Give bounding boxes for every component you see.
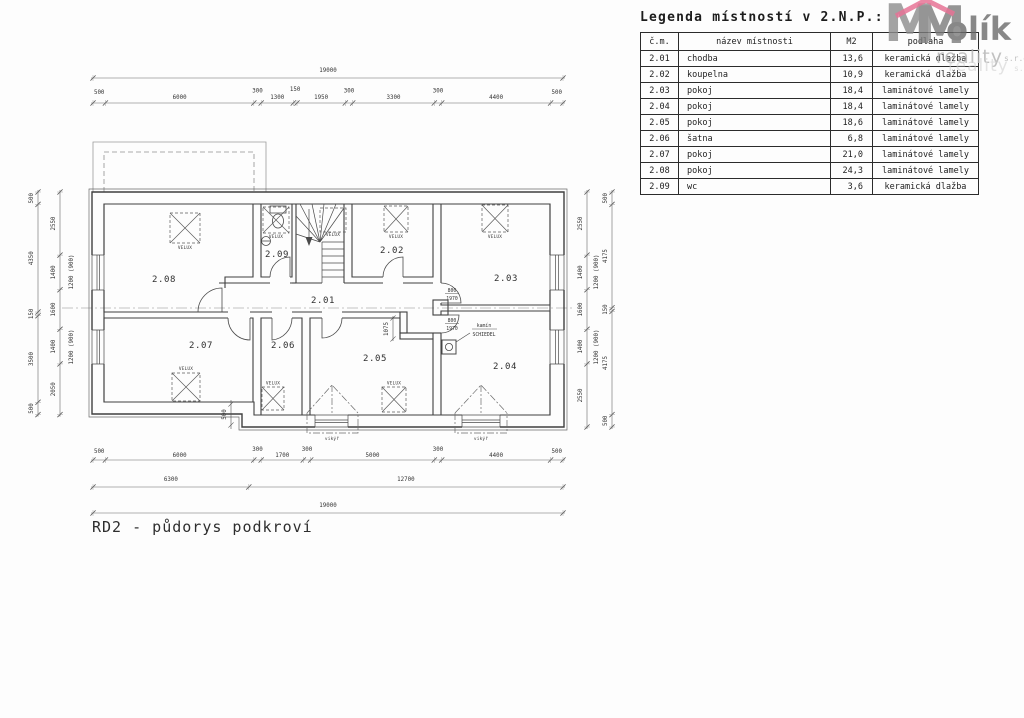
- room-207-outline: [104, 318, 253, 402]
- velux-label: VELUX: [179, 366, 193, 372]
- window-right-1: [548, 255, 566, 290]
- legend-cell: 2.06: [641, 131, 679, 147]
- door-209: [270, 257, 290, 277]
- legend-title: Legenda místností v 2.N.P.:: [640, 10, 985, 25]
- dim-label: 2550: [51, 216, 57, 230]
- dim-label: 500: [29, 192, 35, 203]
- velux-207: VELUX: [172, 366, 200, 401]
- velux-label: VELUX: [326, 232, 340, 238]
- chimney-label-schiedel: SCHIEDEL: [472, 332, 495, 338]
- door-207: [228, 318, 250, 340]
- dim-label: 500: [94, 449, 105, 455]
- dim-label: 150: [603, 304, 609, 315]
- legend-cell: 2.08: [641, 163, 679, 179]
- dim-label: 300: [252, 89, 263, 95]
- legend-cell: keramická dlažba: [873, 67, 979, 83]
- velux-label: VELUX: [389, 234, 403, 240]
- toilet: [270, 206, 286, 228]
- door-size-height: 1970: [446, 326, 458, 332]
- stair-direction-arrow: [306, 237, 313, 246]
- door-206: [272, 318, 292, 340]
- dim-label: 300: [433, 89, 444, 95]
- legend-cell: 2.05: [641, 115, 679, 131]
- velux-label: VELUX: [387, 381, 401, 387]
- room-label-209: 2.09: [265, 250, 289, 260]
- roof-annex-outline: [93, 142, 266, 192]
- legend-header-floor: podlaha: [873, 33, 979, 51]
- velux-203: VELUX: [482, 205, 508, 240]
- dim-label: 300: [252, 447, 263, 453]
- dim-label: 150: [290, 87, 301, 93]
- velux-202: VELUX: [384, 206, 408, 240]
- room-label-202: 2.02: [380, 246, 404, 256]
- dim-label: 1300: [270, 95, 284, 101]
- legend-cell: laminátové lamely: [873, 83, 979, 99]
- door-size-width: 800: [448, 318, 457, 324]
- door-202: [383, 257, 403, 277]
- velux-208: VELUX: [170, 213, 200, 251]
- velux-label: VELUX: [178, 245, 192, 251]
- dim-label: 4400: [489, 453, 503, 459]
- chimney-label-kamin: kamín: [477, 322, 492, 329]
- legend-cell: laminátové lamely: [873, 99, 979, 115]
- legend-cell: laminátové lamely: [873, 147, 979, 163]
- dim-label: 300: [344, 89, 355, 95]
- legend-header-row: č.m. název místnosti M2 podlaha: [641, 33, 979, 51]
- legend-cell: laminátové lamely: [873, 115, 979, 131]
- legend-cell: 21,0: [831, 147, 873, 163]
- dim-label: 19000: [319, 503, 337, 509]
- dim-label: 1400: [51, 265, 57, 279]
- legend-panel: Legenda místností v 2.N.P.: č.m. název m…: [640, 10, 985, 195]
- legend-row: 2.05pokoj18,6laminátové lamely: [641, 115, 979, 131]
- step-dimension: 500: [222, 409, 228, 420]
- legend-cell: laminátové lamely: [873, 131, 979, 147]
- legend-cell: 6,8: [831, 131, 873, 147]
- legend-header-name: název místnosti: [679, 33, 831, 51]
- legend-cell: 18,6: [831, 115, 873, 131]
- dim-label: 500: [603, 415, 609, 426]
- dim-label: 1700: [275, 453, 289, 459]
- legend-cell: 2.02: [641, 67, 679, 83]
- door-size-width: 800: [448, 288, 457, 294]
- dim-label: 3300: [387, 95, 401, 101]
- room-label-204: 2.04: [493, 362, 517, 372]
- door-208: [198, 288, 222, 312]
- jog-dimension: 1075: [384, 322, 390, 336]
- dim-label: 1400: [578, 339, 584, 353]
- dim-label: 2550: [578, 388, 584, 402]
- room-label-206: 2.06: [271, 341, 295, 351]
- dormer-label: vikýř: [474, 435, 488, 442]
- window-size-note: 1200 (900): [594, 255, 600, 290]
- exterior-walls: [89, 189, 567, 430]
- dim-label: 4400: [489, 95, 503, 101]
- legend-cell: 2.01: [641, 51, 679, 67]
- legend-row: 2.07pokoj21,0laminátové lamely: [641, 147, 979, 163]
- dim-label: 500: [29, 403, 35, 414]
- legend-cell: 18,4: [831, 99, 873, 115]
- legend-row: 2.01chodba13,6keramická dlažba: [641, 51, 979, 67]
- velux-label: VELUX: [488, 234, 502, 240]
- dormer-label: vikýř: [325, 435, 339, 442]
- dim-label: 500: [603, 192, 609, 203]
- dim-label: 19000: [319, 68, 337, 74]
- dim-label: 2050: [51, 382, 57, 396]
- legend-header-cm: č.m.: [641, 33, 679, 51]
- legend-header-m2: M2: [831, 33, 873, 51]
- dim-label: 1600: [51, 302, 57, 316]
- room-labels: 2.08 2.09 2.01 2.02 2.03 2.07 2.06 2.05 …: [152, 246, 518, 372]
- legend-cell: 2.09: [641, 179, 679, 195]
- dim-label: 12700: [397, 477, 415, 483]
- legend-cell: 2.03: [641, 83, 679, 99]
- room-label-203: 2.03: [494, 274, 518, 284]
- dim-label: 6000: [173, 95, 187, 101]
- dim-label: 4175: [603, 356, 609, 370]
- dim-label: 6000: [173, 453, 187, 459]
- dim-label: 500: [94, 90, 105, 96]
- window-left-2: [90, 330, 106, 364]
- room-label-208: 2.08: [152, 275, 176, 285]
- dim-label: 2550: [578, 216, 584, 230]
- legend-cell: pokoj: [679, 83, 831, 99]
- legend-row: 2.02koupelna10,9keramická dlažba: [641, 67, 979, 83]
- dim-label: 1950: [314, 95, 328, 101]
- legend-cell: 2.07: [641, 147, 679, 163]
- legend-cell: chodba: [679, 51, 831, 67]
- legend-cell: 13,6: [831, 51, 873, 67]
- velux-label: VELUX: [266, 381, 280, 387]
- room-206-outline: [261, 318, 302, 415]
- legend-cell: šatna: [679, 131, 831, 147]
- door-size-height: 1970: [446, 296, 458, 302]
- window-size-note: 1200 (900): [69, 255, 75, 290]
- dim-label: 500: [552, 449, 563, 455]
- window-bottom-1: [315, 413, 348, 429]
- velux-205: VELUX: [382, 381, 406, 413]
- legend-table: č.m. název místnosti M2 podlaha 2.01chod…: [640, 32, 979, 195]
- dim-label: 5000: [366, 453, 380, 459]
- drawing-sheet: VELUX VELUX VELUX VELUX VELUX VELUX VELU…: [0, 0, 1024, 718]
- legend-cell: wc: [679, 179, 831, 195]
- window-bottom-2: [462, 413, 500, 429]
- window-left-1: [90, 255, 106, 290]
- legend-row: 2.06šatna6,8laminátové lamely: [641, 131, 979, 147]
- room-208-outline: [104, 204, 253, 312]
- legend-cell: laminátové lamely: [873, 163, 979, 179]
- legend-cell: keramická dlažba: [873, 51, 979, 67]
- room-209-outline: [261, 204, 292, 277]
- dim-label: 6300: [164, 477, 178, 483]
- room-label-205: 2.05: [363, 354, 387, 364]
- legend-cell: koupelna: [679, 67, 831, 83]
- dim-label: 4350: [29, 251, 35, 265]
- legend-cell: 24,3: [831, 163, 873, 179]
- dim-label: 150: [29, 308, 35, 319]
- room-label-207: 2.07: [189, 341, 213, 351]
- legend-row: 2.04pokoj18,4laminátové lamely: [641, 99, 979, 115]
- legend-row: 2.03pokoj18,4laminátové lamely: [641, 83, 979, 99]
- window-size-note: 1200 (900): [594, 330, 600, 365]
- legend-cell: pokoj: [679, 115, 831, 131]
- dim-label: 500: [552, 90, 563, 96]
- dim-label: 300: [302, 447, 313, 453]
- dimension-lines: 1900050060003001300150195030033003004400…: [29, 68, 615, 516]
- chimney: [442, 333, 470, 354]
- legend-cell: 10,9: [831, 67, 873, 83]
- annotations: 800 1970 800 1970 kamín SCHIEDEL 1075 50…: [69, 255, 600, 429]
- legend-cell: 18,4: [831, 83, 873, 99]
- legend-cell: pokoj: [679, 99, 831, 115]
- dim-label: 300: [433, 447, 444, 453]
- legend-cell: 2.04: [641, 99, 679, 115]
- legend-cell: pokoj: [679, 147, 831, 163]
- dim-label: 1400: [51, 339, 57, 353]
- legend-row: 2.08pokoj24,3laminátové lamely: [641, 163, 979, 179]
- velux-206: VELUX: [262, 381, 284, 411]
- dim-label: 3500: [29, 352, 35, 366]
- velux-label: VELUX: [269, 234, 283, 240]
- velux-209: VELUX: [263, 207, 289, 240]
- dim-label: 1600: [578, 302, 584, 316]
- window-right-2: [548, 330, 566, 364]
- legend-cell: pokoj: [679, 163, 831, 179]
- legend-row: 2.09wc3,6keramická dlažba: [641, 179, 979, 195]
- velux-symbols: VELUX VELUX VELUX VELUX VELUX VELUX VELU…: [170, 205, 508, 412]
- dim-label: 1400: [578, 265, 584, 279]
- legend-cell: keramická dlažba: [873, 179, 979, 195]
- room-label-201: 2.01: [311, 296, 335, 306]
- legend-cell: 3,6: [831, 179, 873, 195]
- door-205: [322, 318, 342, 338]
- drawing-title: RD2 - půdorys podkroví: [92, 518, 313, 536]
- window-size-note: 1200 (900): [69, 330, 75, 365]
- dim-label: 4175: [603, 249, 609, 263]
- fixtures: [262, 206, 471, 354]
